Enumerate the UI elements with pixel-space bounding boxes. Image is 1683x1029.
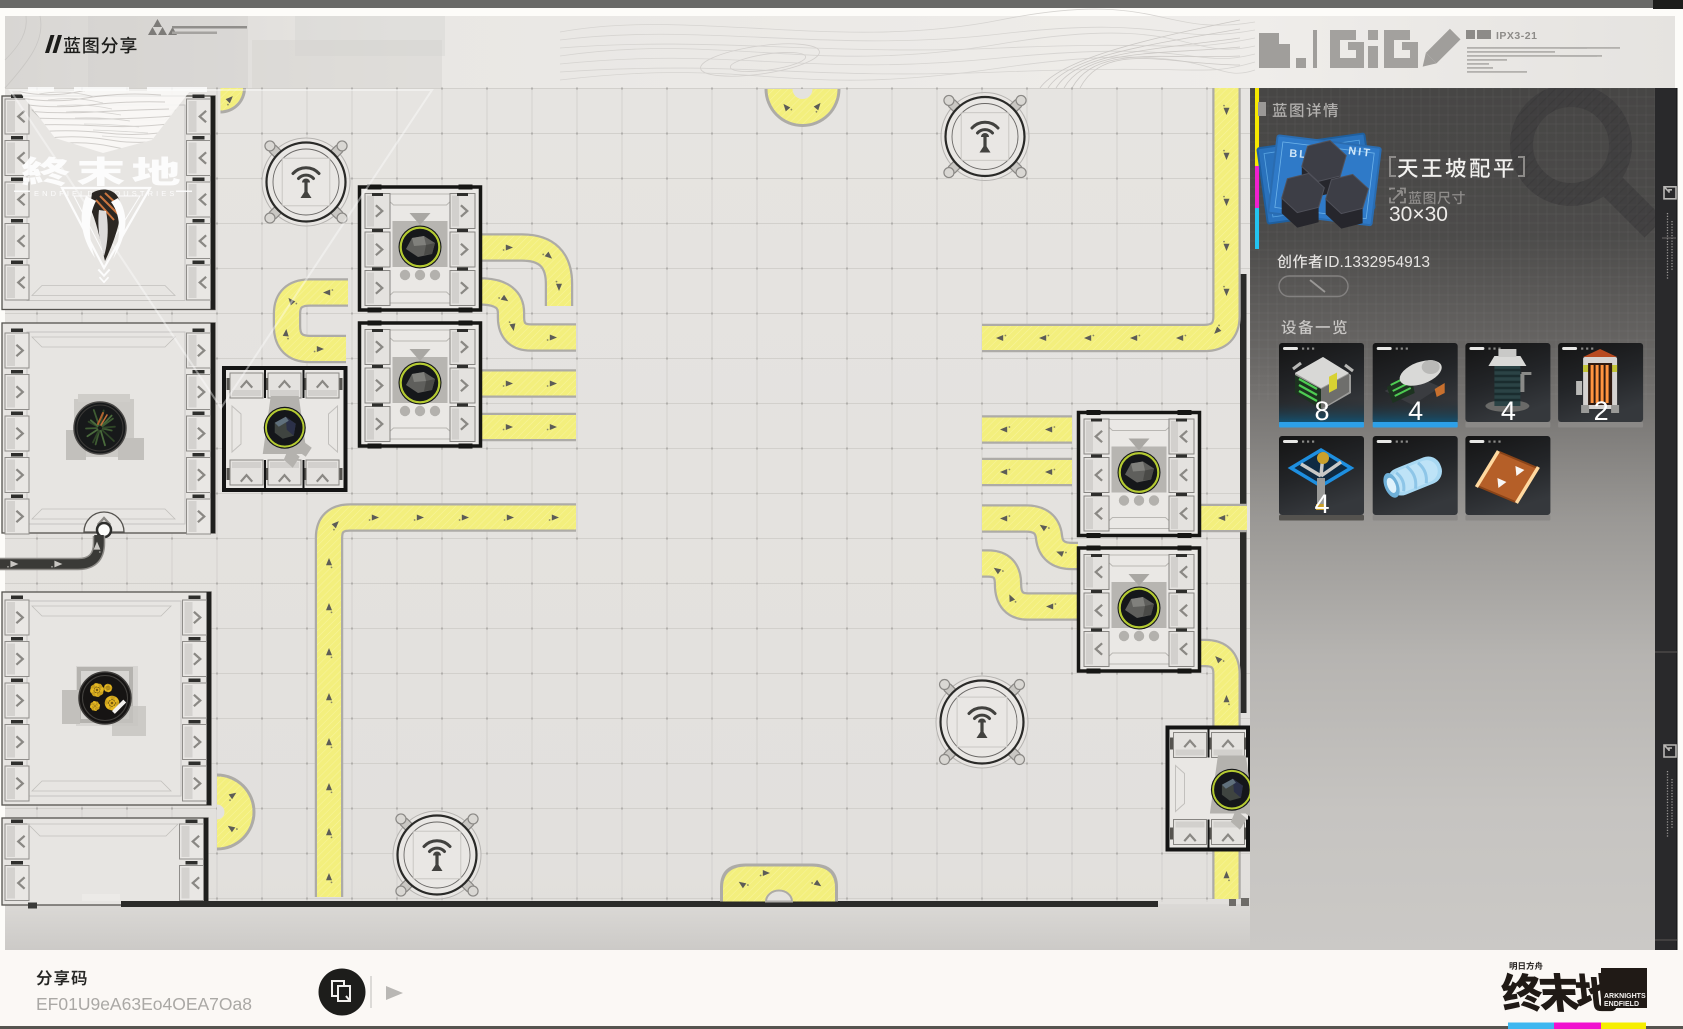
svg-text:EF01U9eA63Eo4OEA7Oa8: EF01U9eA63Eo4OEA7Oa8	[36, 994, 252, 1014]
svg-text:30×30: 30×30	[1389, 203, 1448, 226]
svg-text:4: 4	[1408, 396, 1423, 426]
svg-text:ARKNIGHTS: ARKNIGHTS	[1604, 993, 1646, 1000]
svg-text:IPX3-21: IPX3-21	[1496, 30, 1537, 42]
svg-text:8: 8	[1314, 396, 1329, 426]
svg-text:2: 2	[1594, 396, 1609, 426]
svg-text:4: 4	[1314, 489, 1329, 519]
svg-text:4: 4	[1501, 396, 1516, 426]
svg-text:ENDFIELD: ENDFIELD	[1604, 1001, 1639, 1008]
svg-text:ID.1332954913: ID.1332954913	[1324, 254, 1430, 271]
